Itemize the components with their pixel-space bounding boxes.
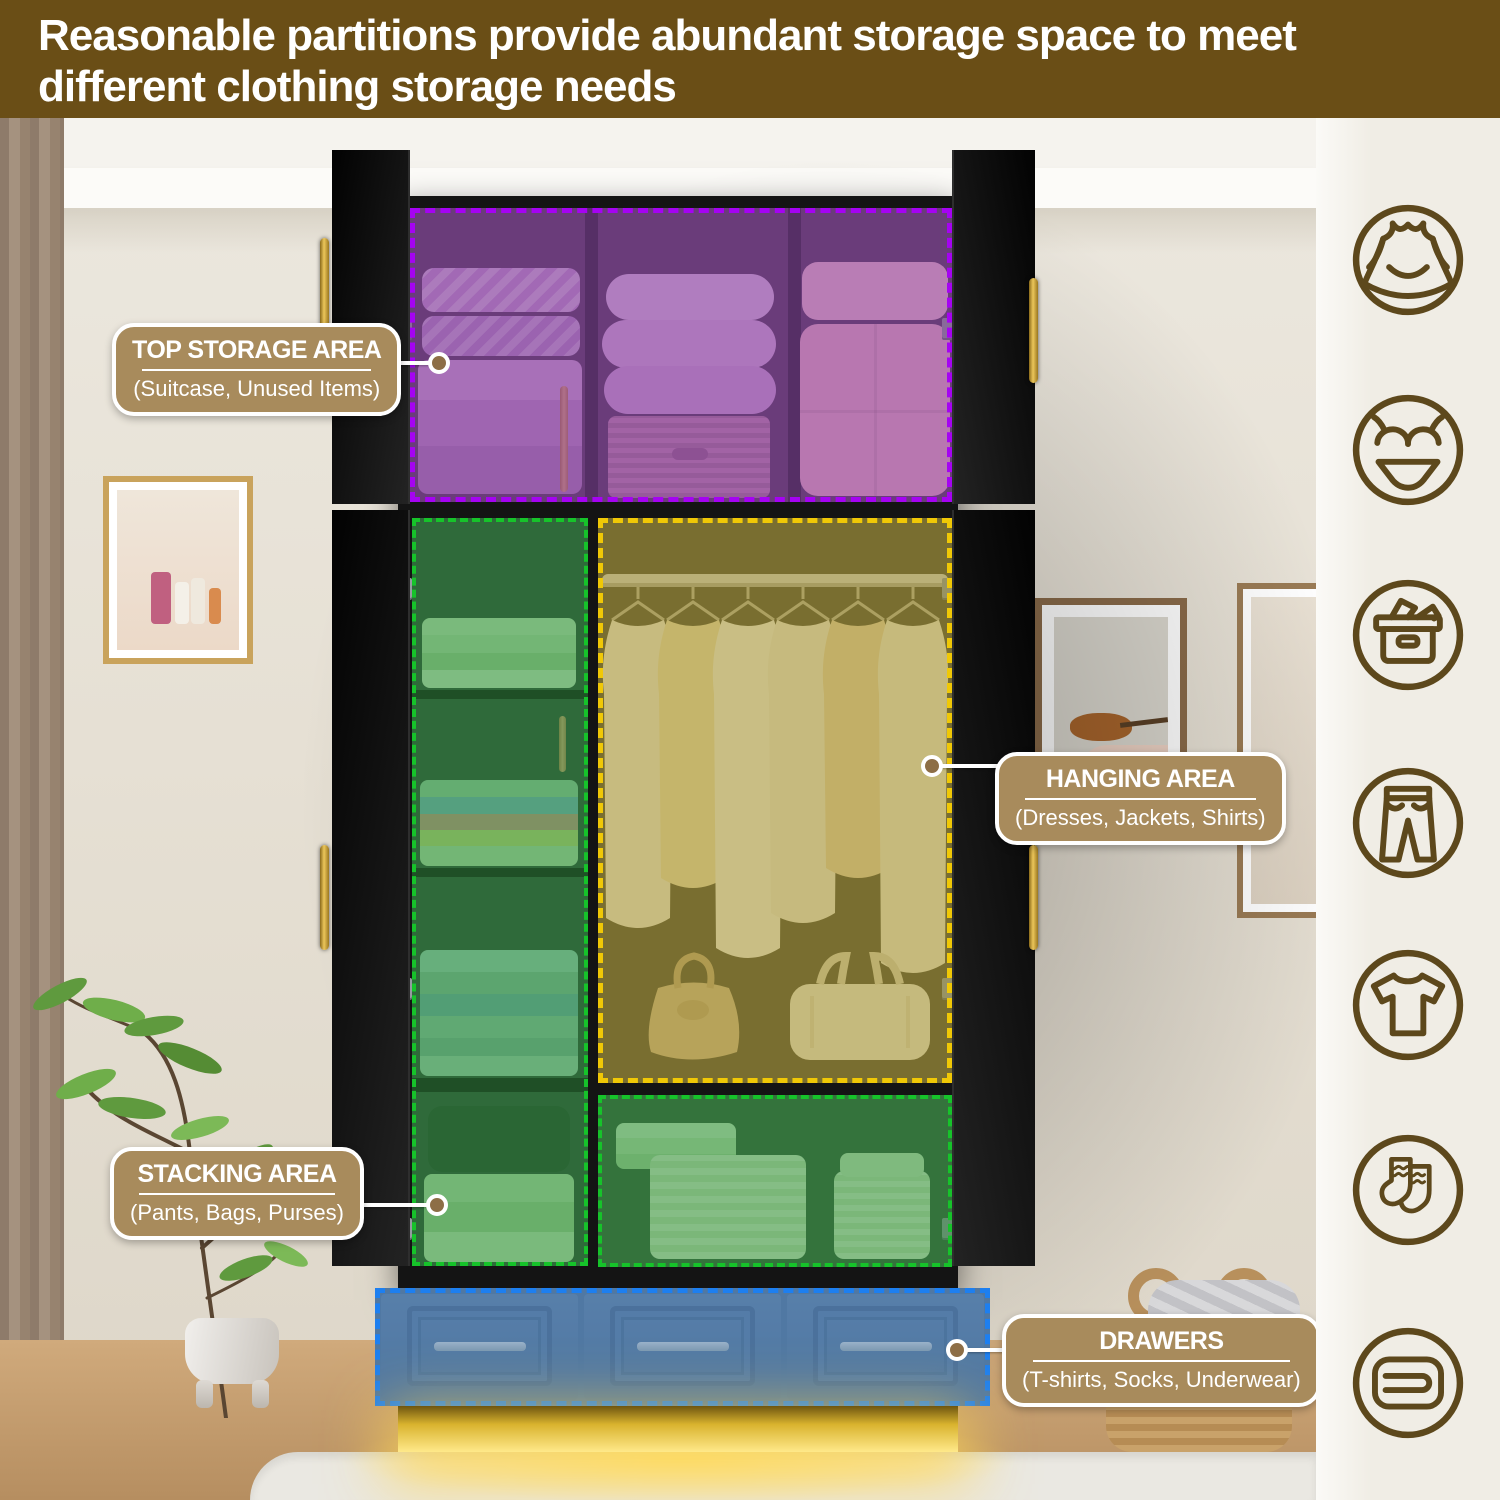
callout-dot [428, 352, 450, 374]
pot-leg [252, 1380, 269, 1408]
callout-subtitle: (Pants, Bags, Purses) [130, 1200, 344, 1226]
wardrobe-door-top-right [952, 150, 1035, 504]
socks-icon [1349, 1131, 1467, 1249]
wall-art-bottles [103, 476, 253, 664]
callout-top-storage: TOP STORAGE AREA (Suitcase, Unused Items… [112, 323, 401, 416]
pillow [604, 366, 776, 414]
icon-sidebar [1316, 118, 1500, 1500]
clothes-stack [420, 950, 578, 1076]
folded-bag [428, 1106, 570, 1172]
plant-pot [185, 1318, 279, 1384]
clothes-stack [420, 780, 578, 866]
callout-subtitle: (T-shirts, Socks, Underwear) [1022, 1367, 1301, 1393]
stacking-compartment-bottom [598, 1095, 952, 1267]
drawer-handle [637, 1342, 729, 1351]
rolled-blanket [422, 268, 580, 312]
copper-center-handle [559, 716, 566, 772]
pot-leg [196, 1380, 213, 1408]
callout-dot [426, 1194, 448, 1216]
hanging-compartment [598, 518, 952, 1083]
callout-title: HANGING AREA [1046, 765, 1235, 794]
header-banner: Reasonable partitions provide abundant s… [0, 0, 1500, 118]
wardrobe-door-bottom-right [952, 510, 1035, 1266]
copper-center-handle [560, 386, 568, 492]
rolled-towels [840, 1153, 924, 1177]
drawers-section [375, 1288, 990, 1406]
dress-icon [1349, 201, 1467, 319]
pillow [606, 274, 774, 320]
folded-towel-stack [418, 360, 582, 494]
callout-dot [921, 755, 943, 777]
pillow [602, 320, 776, 368]
drawer [584, 1294, 781, 1400]
comforter [800, 324, 950, 496]
gold-door-handle [320, 845, 329, 950]
basket-handle-slot [672, 448, 708, 460]
wicker-basket-light [834, 1171, 930, 1259]
callout-dot [946, 1339, 968, 1361]
gold-door-handle [1029, 278, 1038, 383]
folded-comforter [802, 262, 948, 320]
hanging-clothes [598, 518, 952, 1083]
drawer [381, 1294, 578, 1400]
rolled-blanket [422, 316, 580, 356]
callout-subtitle: (Suitcase, Unused Items) [133, 376, 380, 402]
top-storage-compartment [410, 208, 952, 502]
bedroom-scene: TOP STORAGE AREA (Suitcase, Unused Items… [0, 118, 1316, 1500]
tshirt-icon [1349, 946, 1467, 1064]
callout-title: STACKING AREA [137, 1160, 336, 1189]
callout-title: DRAWERS [1099, 1327, 1223, 1356]
gold-led-base [398, 1406, 958, 1452]
callout-subtitle: (Dresses, Jackets, Shirts) [1015, 805, 1266, 831]
drawer-handle [434, 1342, 526, 1351]
folded-towel-icon [1349, 1324, 1467, 1442]
clothes-stack [422, 618, 576, 688]
callout-hanging: HANGING AREA (Dresses, Jackets, Shirts) [995, 752, 1286, 845]
gold-door-handle [1029, 845, 1038, 950]
storage-box-icon [1349, 576, 1467, 694]
page-title: Reasonable partitions provide abundant s… [38, 10, 1458, 113]
pants-icon [1349, 764, 1467, 882]
clothes-stack [424, 1174, 574, 1262]
callout-title: TOP STORAGE AREA [132, 336, 381, 365]
lingerie-icon [1349, 391, 1467, 509]
wicker-basket-light [650, 1155, 806, 1259]
drawer-handle [840, 1342, 932, 1351]
callout-drawers: DRAWERS (T-shirts, Socks, Underwear) [1002, 1314, 1316, 1407]
stacking-compartment-left [412, 518, 588, 1266]
callout-stacking: STACKING AREA (Pants, Bags, Purses) [110, 1147, 364, 1240]
